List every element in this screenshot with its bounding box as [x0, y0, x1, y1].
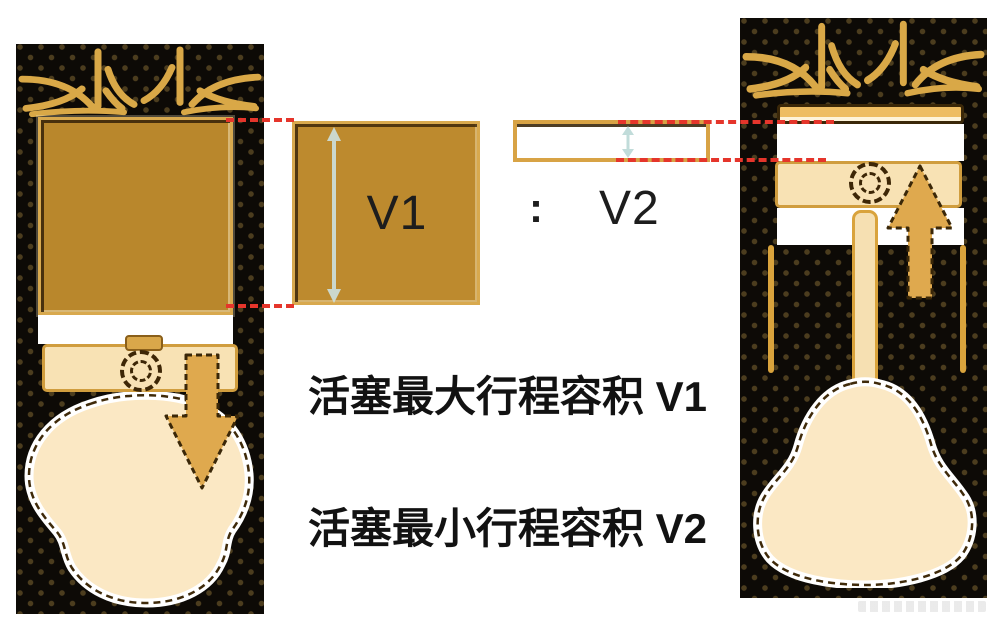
alignment-dash-left-bottom — [226, 304, 294, 308]
caption-min-volume: 活塞最小行程容积 V2 — [308, 495, 707, 556]
v2-volume-box — [513, 120, 710, 162]
wrist-pin-icon — [849, 162, 891, 204]
connecting-rod — [852, 210, 878, 386]
v2-height-arrow-icon — [619, 126, 637, 158]
cylinder-wall-right — [960, 245, 966, 373]
alignment-dash-right-top — [618, 120, 834, 124]
alignment-dash-left-top — [226, 118, 294, 122]
intake-branches-icon — [16, 44, 264, 122]
max-stroke-volume-region — [38, 117, 233, 315]
min-stroke-volume-region — [777, 124, 964, 161]
v1-height-arrow-icon — [323, 127, 345, 303]
v1-volume-box: V1 — [292, 121, 480, 305]
ratio-colon: : — [529, 184, 543, 232]
piston-up-arrow-icon — [886, 164, 954, 300]
wrist-pin-inner-icon — [859, 172, 881, 194]
right-cylinder — [740, 18, 987, 598]
piston-down-arrow-icon — [164, 352, 240, 492]
wrist-pin-inner-icon — [130, 360, 152, 382]
wrist-pin-icon — [120, 350, 162, 392]
v2-label: V2 — [599, 181, 660, 236]
cylinder-wall-left — [768, 245, 774, 373]
pin-boss — [125, 335, 163, 351]
intake-branches-icon — [740, 18, 987, 104]
alignment-dash-right-bottom — [616, 158, 826, 162]
v1-label: V1 — [345, 186, 428, 241]
left-cylinder — [16, 44, 264, 614]
crankcase-blob — [750, 376, 980, 588]
diagram-canvas: V1 : V2 活塞最大行程容积 V1 活塞最小行程容积 V2 — [0, 0, 1000, 629]
caption-max-volume: 活塞最大行程容积 V1 — [308, 363, 707, 424]
watermark — [858, 601, 986, 612]
